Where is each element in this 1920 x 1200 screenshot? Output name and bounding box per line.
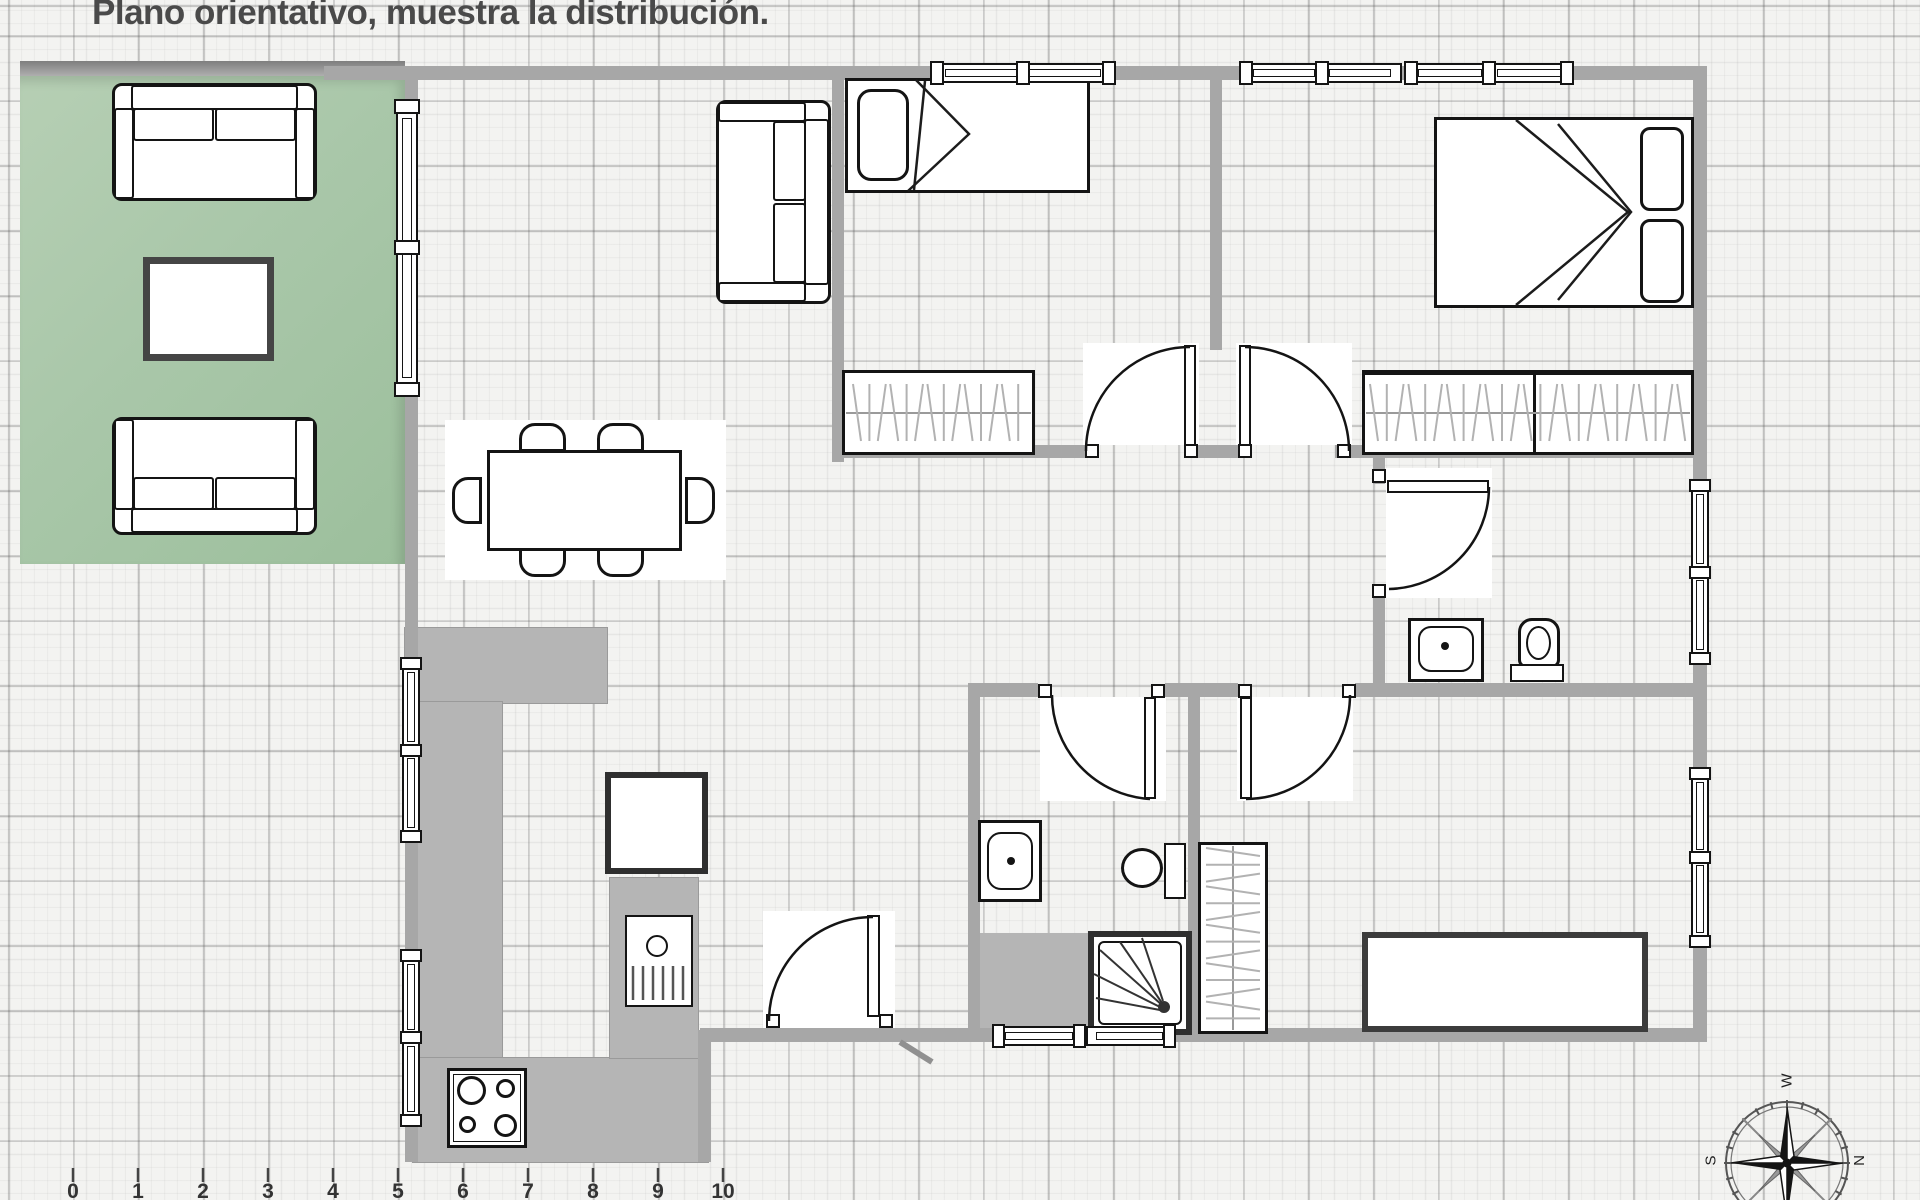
bedroom3-door-post [1342, 684, 1356, 698]
bedroom3-door-leaf [1240, 697, 1252, 799]
bath1-toilet-base [1510, 664, 1564, 682]
bath1-door-post [1372, 469, 1386, 483]
compass-rose [1724, 1100, 1850, 1200]
window-pane [1696, 782, 1704, 850]
window-pane [1696, 865, 1704, 933]
scale-label: 2 [185, 1180, 221, 1200]
bedroom2-door-leaf [1184, 345, 1196, 446]
bedroom1-door-post [1337, 444, 1351, 458]
window-pane [402, 118, 412, 242]
sofa-arm-top [718, 102, 806, 122]
scale-label: 0 [55, 1180, 91, 1200]
window-cap [1404, 61, 1418, 85]
dining-chair-right [685, 477, 715, 524]
entry-door-leaf [867, 915, 880, 1017]
stove-burner-medium-br [494, 1114, 517, 1137]
double-bed-pillow-bottom [1640, 219, 1684, 303]
bath1-door-post [1372, 584, 1386, 598]
bedroom2-door-post [1184, 444, 1198, 458]
window-cap [400, 830, 422, 843]
bedroom1-door-post [1238, 444, 1252, 458]
window-pane [407, 964, 415, 1030]
window-cap [394, 240, 420, 255]
window-cap [1482, 61, 1496, 85]
window-cap [1689, 767, 1711, 780]
scale-label: 10 [705, 1180, 741, 1200]
wardrobe-bedroom1-divider [1533, 372, 1536, 453]
sofa-cushion [773, 203, 806, 283]
bedroom3-door-area [1237, 697, 1353, 801]
window-cap [992, 1024, 1005, 1048]
fridge [605, 772, 708, 874]
compass-intercardinal-points [1759, 1135, 1815, 1191]
bedroom2-door-area [1083, 343, 1199, 445]
window-bath2-south-2 [1086, 1026, 1173, 1046]
bedroom2-door-post [1085, 444, 1099, 458]
window-cap [1689, 935, 1711, 948]
sofa-arm-right [295, 108, 315, 199]
sofa-arm-right [295, 419, 315, 510]
entry-threshold-mark [900, 1042, 932, 1062]
bath1-door-leaf [1387, 480, 1489, 493]
wall-kitchen-east [698, 1030, 711, 1162]
sofa-top [112, 83, 317, 201]
window-pane [1253, 69, 1315, 77]
sofa-bottom [112, 417, 317, 535]
compass-label-north: N [1851, 1155, 1868, 1166]
compass-label-south: S [1703, 1155, 1720, 1165]
window-cap [394, 99, 420, 114]
wardrobe-bedroom3 [1198, 842, 1268, 1034]
window-cap [1560, 61, 1574, 85]
wall-hall-south-c [1355, 683, 1695, 697]
dining-chair-top-2 [597, 423, 644, 452]
single-bed-pillow [857, 89, 909, 181]
window-cap [394, 382, 420, 397]
scale-label: 9 [640, 1180, 676, 1200]
window-cap [1016, 61, 1030, 85]
entry-door-post [766, 1014, 780, 1028]
window-cap [1239, 61, 1253, 85]
compass-diagonals [1743, 1119, 1831, 1200]
window-pane [407, 1046, 415, 1112]
window-cap [1163, 1024, 1176, 1048]
scale-label: 4 [315, 1180, 351, 1200]
kitchen-counter-top [405, 628, 607, 703]
page-title: Plano orientativo, muestra la distribuci… [92, 0, 769, 33]
shower-tray-inner [1098, 941, 1182, 1025]
window-cap [1689, 851, 1711, 864]
bath1-toilet-inner [1526, 626, 1551, 660]
wardrobe-bedroom2 [842, 370, 1035, 455]
compass-ticks [1724, 1100, 1850, 1200]
bedroom3-door-post [1238, 684, 1252, 698]
entry-door-post [879, 1014, 893, 1028]
compass-cardinal-points [1731, 1107, 1843, 1200]
wardrobe-bedroom1 [1362, 370, 1694, 455]
coffee-table [143, 257, 274, 361]
window-cap [400, 657, 422, 670]
dining-chair-left [452, 477, 482, 524]
bath1-sink-faucet [1441, 642, 1449, 650]
compass-label-west: W [1779, 1073, 1796, 1087]
scale-label: 3 [250, 1180, 286, 1200]
sofa-cushion [215, 477, 296, 510]
bath2-sink-faucet [1007, 857, 1015, 865]
window-pane [407, 758, 415, 828]
scale-label: 5 [380, 1180, 416, 1200]
kitchen-sink-unit [625, 915, 693, 1007]
scale-label: 7 [510, 1180, 546, 1200]
window-pane [402, 254, 412, 378]
bath2-door-post [1038, 684, 1052, 698]
sofa-back [131, 85, 298, 110]
window-cap [930, 61, 944, 85]
sofa-cushion [215, 108, 296, 141]
dining-chair-top-1 [519, 423, 566, 452]
window-pane [1029, 69, 1101, 77]
window-pane [1005, 1032, 1073, 1040]
window-cap [400, 744, 422, 757]
scale-label: 6 [445, 1180, 481, 1200]
bedroom1-door-leaf [1239, 345, 1251, 446]
sofa-back [804, 119, 829, 285]
wall-hall-south-b [1165, 683, 1238, 697]
stove-burner-small-tr [496, 1079, 515, 1098]
sofa-arm-bottom [718, 282, 806, 302]
stove-burner-large [457, 1076, 486, 1105]
window-cap [400, 1114, 422, 1127]
wall-between-bedrooms [1210, 72, 1222, 350]
window-pane [1497, 69, 1561, 77]
dining-table [487, 450, 682, 551]
sofa-cushion [773, 121, 806, 201]
scale-label: 1 [120, 1180, 156, 1200]
shower-tray [1088, 931, 1192, 1035]
stove-burner-small-bl [459, 1116, 476, 1133]
sofa-dining [716, 100, 831, 304]
bedroom1-door-area [1236, 343, 1352, 445]
bath2-sink [978, 820, 1042, 902]
floor-plan-canvas: Plano orientativo, muestra la distribuci… [0, 0, 1920, 1200]
window-cap [400, 949, 422, 962]
window-cap [400, 1031, 422, 1044]
dining-chair-bottom-2 [597, 548, 644, 577]
sofa-cushion [133, 477, 214, 510]
window-cap [1315, 61, 1329, 85]
bath1-sink [1408, 618, 1484, 682]
window-cap [1689, 566, 1711, 579]
window-pane [1329, 69, 1391, 77]
window-cap [1689, 652, 1711, 665]
window-cap [1102, 61, 1116, 85]
window-pane [1096, 1032, 1163, 1040]
bath2-floor [980, 933, 1090, 1033]
window-bath2-south-1 [995, 1026, 1083, 1046]
bath2-door-post [1151, 684, 1165, 698]
window-cap [1073, 1024, 1086, 1048]
window-pane [1418, 69, 1482, 77]
bath1-toilet-bowl [1518, 618, 1560, 668]
kitchen-counter-west [413, 702, 502, 1058]
kitchen-sink-faucet [646, 935, 668, 957]
bed-bedroom3 [1362, 932, 1648, 1032]
window-pane [1696, 494, 1704, 564]
sofa-cushion [133, 108, 214, 141]
bath2-toilet-bowl [1121, 848, 1163, 888]
window-pane [945, 69, 1017, 77]
double-bed-pillow-top [1640, 127, 1684, 211]
scale-label: 8 [575, 1180, 611, 1200]
wall-bath1-west-b [1373, 596, 1385, 697]
bath2-door-leaf [1144, 697, 1156, 799]
dining-chair-bottom-1 [519, 548, 566, 577]
sofa-back [131, 508, 298, 533]
sofa-arm-left [114, 419, 134, 510]
window-pane [407, 672, 415, 742]
bath2-toilet-tank [1164, 843, 1186, 899]
window-cap [1689, 479, 1711, 492]
window-pane [1696, 580, 1704, 650]
sofa-arm-left [114, 108, 134, 199]
